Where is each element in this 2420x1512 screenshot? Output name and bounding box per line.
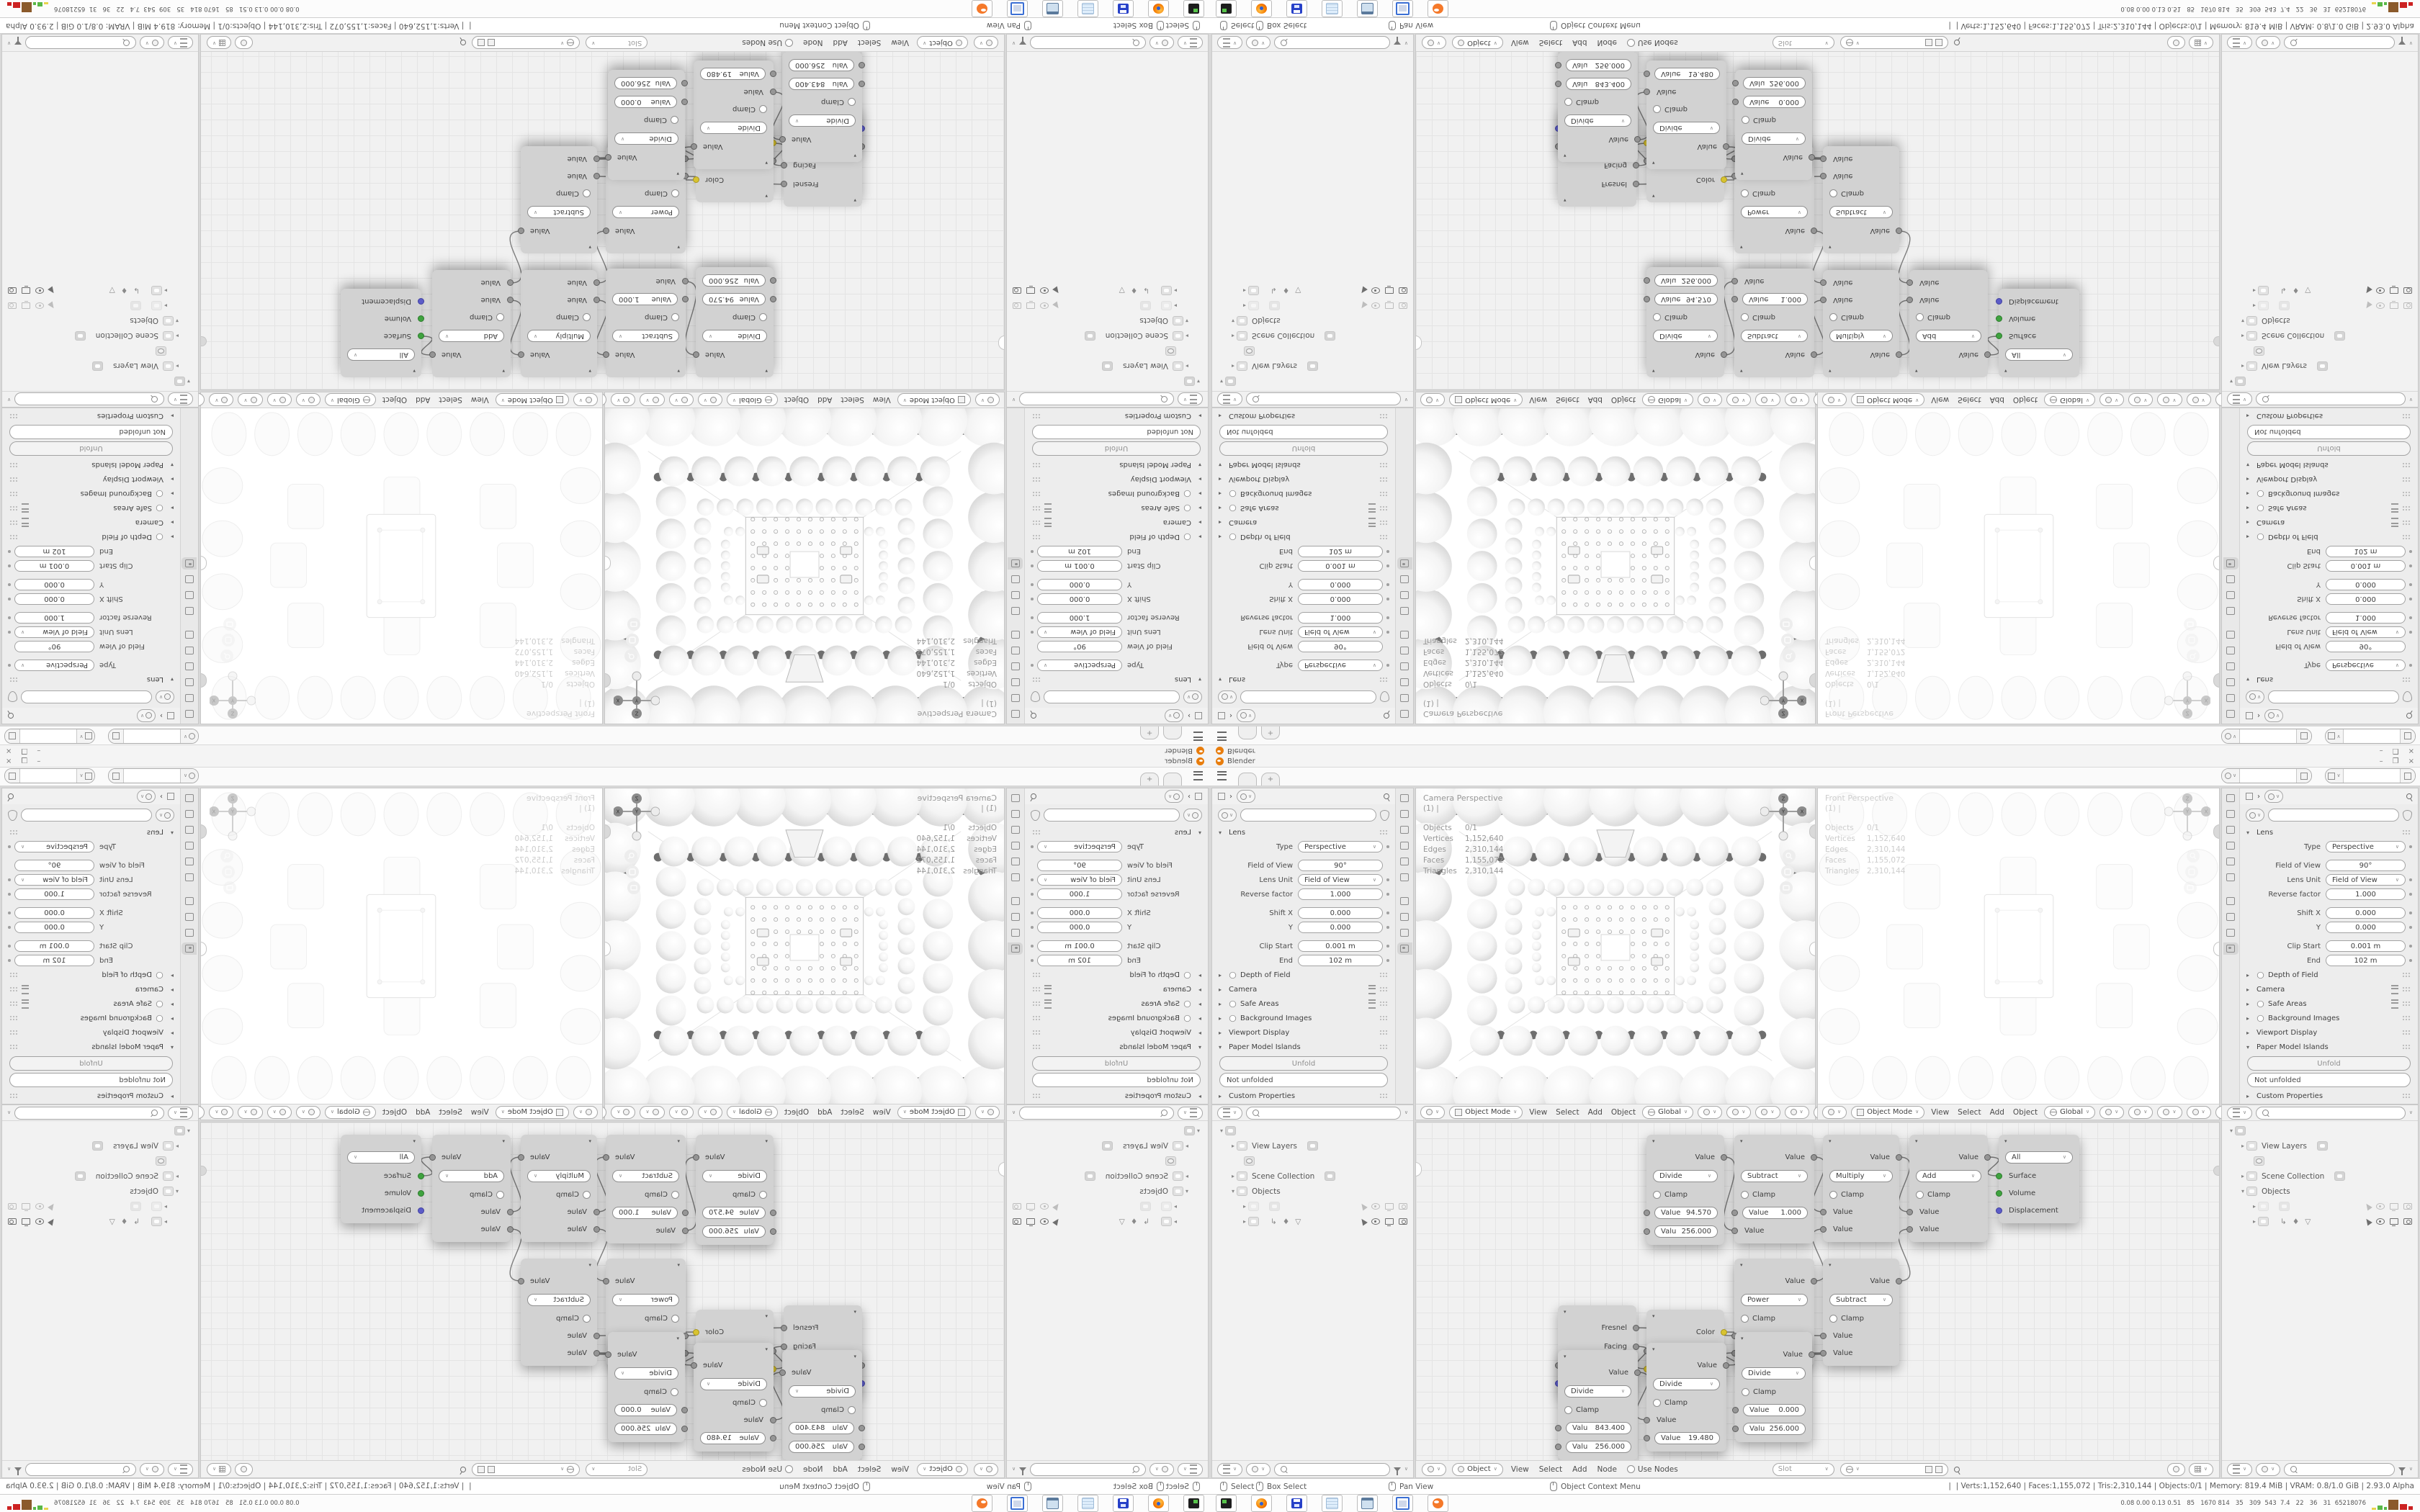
properties-search-input[interactable] <box>1240 809 1376 822</box>
socket-out-fresnel[interactable] <box>781 181 787 188</box>
taskbar-app-system-monitor[interactable] <box>1183 1495 1204 1512</box>
overlays-button[interactable]: ∨ <box>2187 394 2211 407</box>
orientation-selector[interactable]: Global∨ <box>2044 394 2095 407</box>
proportional-editing-button[interactable]: ∨ <box>640 394 664 407</box>
mode-selector[interactable]: Object Mode∨ <box>897 1106 971 1119</box>
restrict-eye-icon[interactable] <box>1040 287 1049 294</box>
value-input[interactable]: Valu843.400 <box>1566 78 1631 91</box>
tab-render[interactable] <box>2223 692 2238 704</box>
outliner-row[interactable] <box>2222 1153 2418 1169</box>
editor-type-button[interactable]: ∨ <box>975 1106 1000 1119</box>
restrict-cursor-icon[interactable] <box>48 1218 56 1226</box>
restrict-eye-icon[interactable] <box>1371 287 1380 294</box>
outliner-row[interactable]: ▸↳♦▽ <box>2222 1214 2418 1229</box>
minimize-button[interactable]: – <box>37 747 40 755</box>
outliner-row[interactable]: ▾ <box>2 1123 198 1138</box>
outliner-row[interactable]: ▸↳♦▽ <box>2222 283 2418 298</box>
object-breadcrumb-icon[interactable] <box>1195 793 1202 800</box>
tab-object[interactable] <box>182 605 197 617</box>
tab-tool[interactable] <box>2223 792 2238 804</box>
restrict-cursor-icon[interactable] <box>2364 1218 2372 1226</box>
node-s1[interactable]: ▾ValueSubtract∨ClampValue1.000Value <box>1734 1135 1814 1243</box>
menu-add[interactable]: Add <box>1988 396 2007 405</box>
id-selector-icon[interactable]: ∨ <box>156 809 174 822</box>
id-selector-icon[interactable]: ∨ <box>1218 809 1237 822</box>
node-outp[interactable]: ▾All∨SurfaceVolumeDisplacement <box>1999 1135 2079 1223</box>
editor-type-button[interactable]: ∨ <box>1420 394 1445 407</box>
snapping-button[interactable]: ∨ <box>207 37 231 50</box>
operation-select[interactable]: Subtract∨ <box>1829 1294 1893 1306</box>
menu-view[interactable]: View <box>1527 396 1549 405</box>
panel-paper-model-islands[interactable]: ▾Paper Model Islands <box>1212 1040 1395 1054</box>
properties-search-input[interactable] <box>21 690 152 703</box>
use-nodes-checkbox[interactable]: Use Nodes <box>740 39 795 48</box>
clamp-checkbox[interactable]: Clamp <box>432 309 511 326</box>
node-s2[interactable]: ▾ValueSubtract∨ClampValueValue <box>521 1259 597 1366</box>
value-input[interactable]: Valu256.000 <box>1654 1225 1718 1238</box>
menu-select[interactable]: Select <box>436 1108 464 1117</box>
add-workspace-button[interactable]: + <box>1140 726 1159 739</box>
panel-background-images[interactable]: ▸Background Images <box>2240 1011 2418 1025</box>
shift-x-input[interactable]: 0.000 <box>14 907 94 919</box>
taskbar-app-floppy-64[interactable] <box>1286 1495 1307 1512</box>
tab-render[interactable] <box>1397 808 1412 820</box>
socket-in[interactable] <box>1555 1444 1561 1450</box>
outliner-row[interactable] <box>1212 343 1413 359</box>
panel-lens[interactable]: ▾Lens <box>2240 825 2418 840</box>
end-input[interactable]: 102 m <box>2326 546 2406 557</box>
restrict-eye-icon[interactable] <box>1371 302 1380 309</box>
socket-in-displacement[interactable] <box>1996 1207 2002 1214</box>
taskbar-app-window-manager[interactable] <box>1357 1495 1378 1512</box>
snapping-button[interactable]: ∨ <box>207 1463 231 1476</box>
operation-select[interactable]: Add∨ <box>1916 330 1981 342</box>
navigation-gizmo[interactable]: ZYX <box>2164 611 2210 719</box>
outliner-row[interactable]: ▸ <box>2 298 198 313</box>
operation-select[interactable]: Divide∨ <box>1564 114 1631 127</box>
menu-select[interactable]: Select <box>1955 1108 1983 1117</box>
viewport-front[interactable]: Front Perspective(1) |Objects0/1Vertices… <box>1817 392 2220 724</box>
reverse-factor-input[interactable]: 1.000 <box>14 888 94 900</box>
editor-type-button[interactable]: ∨ <box>1178 1463 1203 1476</box>
node-canvas[interactable]: ▾ValueDivide∨ClampValue94.570Valu256.000… <box>1416 52 2219 390</box>
restrict-camera-icon[interactable] <box>1013 1203 1021 1210</box>
socket-in-value[interactable] <box>1820 1350 1827 1356</box>
socket-out-value[interactable] <box>603 228 609 235</box>
operation-select[interactable]: Divide∨ <box>1653 330 1718 342</box>
socket-out-value[interactable] <box>1896 1278 1902 1284</box>
outliner-row-view-layers[interactable]: ▸View Layers <box>1212 1138 1413 1153</box>
tab-object-data[interactable] <box>182 557 197 570</box>
value-input[interactable]: Value19.480 <box>1654 68 1720 81</box>
editor-type-button[interactable]: ∨ <box>975 394 1000 407</box>
end-input[interactable]: 102 m <box>14 546 94 557</box>
restrict-monitor-icon[interactable] <box>1385 1218 1394 1225</box>
outliner-row[interactable]: ▾ <box>1212 1123 1413 1138</box>
filter-funnel-icon[interactable] <box>1019 41 1026 45</box>
editor-type-button[interactable]: ∨ <box>168 1463 193 1476</box>
outliner-search-input[interactable] <box>14 1107 164 1120</box>
filter-funnel-icon[interactable] <box>1394 41 1401 45</box>
object-breadcrumb-icon[interactable] <box>1218 793 1225 800</box>
outliner-row[interactable] <box>2 1153 198 1169</box>
shader-id-selector[interactable]: Object∨ <box>1452 37 1503 50</box>
taskbar-app-firefox[interactable] <box>1251 1495 1272 1512</box>
y-input[interactable]: 0.000 <box>14 579 94 590</box>
outliner-row[interactable]: ▸ <box>1007 298 1208 313</box>
restrict-monitor-icon[interactable] <box>22 302 30 309</box>
restrict-cursor-icon[interactable] <box>1359 1218 1368 1226</box>
outliner-row[interactable]: ▾ <box>1212 374 1413 389</box>
snapping-button[interactable]: ∨ <box>2189 37 2213 50</box>
clip-start-input[interactable]: 0.001 m <box>14 940 94 952</box>
proportional-editing-button[interactable]: ∨ <box>2157 394 2182 407</box>
menu-add[interactable]: Add <box>1586 1108 1605 1117</box>
workspace-tab[interactable] <box>1163 726 1182 739</box>
operation-select[interactable]: Divide∨ <box>1653 1170 1718 1182</box>
value-input[interactable]: Valu256.000 <box>1743 1423 1806 1435</box>
editor-type-button[interactable]: ∨ <box>573 1106 598 1119</box>
socket-in-value[interactable] <box>1906 1226 1913 1233</box>
operation-select[interactable]: Divide∨ <box>702 1170 767 1182</box>
restrict-camera-icon[interactable] <box>8 1203 17 1210</box>
panel-safe-areas[interactable]: ▸Safe Areas <box>2240 501 2418 516</box>
operation-select[interactable]: Divide∨ <box>702 330 767 342</box>
panel-viewport-display[interactable]: ▸Viewport Display <box>1025 472 1208 487</box>
clamp-checkbox[interactable]: Clamp <box>1823 1310 1899 1327</box>
menu-select[interactable]: Select <box>856 1465 883 1474</box>
shader-editor[interactable]: ▾ValueDivide∨ClampValue94.570Valu256.000… <box>1415 1122 2220 1478</box>
operation-select[interactable]: All∨ <box>347 1151 415 1164</box>
material-id-field[interactable]: ∨ <box>472 1463 580 1476</box>
object-breadcrumb-icon[interactable] <box>1195 712 1202 719</box>
value-input[interactable]: Valu256.000 <box>789 60 854 72</box>
outliner-row-objects[interactable]: ▾Objects <box>1212 313 1413 328</box>
display-mode-button[interactable]: ∨ <box>1217 393 1242 406</box>
outliner-search-input[interactable] <box>1246 393 1401 406</box>
unfold-status-field[interactable]: Not unfolded <box>1219 1073 1388 1087</box>
camera-data-breadcrumb-icon[interactable]: ∨ <box>1165 790 1183 803</box>
snapping-button[interactable]: ∨ <box>296 1106 321 1119</box>
clamp-checkbox[interactable]: Clamp <box>694 101 774 118</box>
overlays-button[interactable]: ∨ <box>611 394 635 407</box>
clip-start-input[interactable]: 0.001 m <box>1037 560 1122 572</box>
properties-search-input[interactable] <box>1240 690 1376 703</box>
new-scene-button[interactable] <box>2296 729 2311 743</box>
magnet-button[interactable]: ∨ <box>267 394 292 407</box>
node-a[interactable]: ▾ValueAdd∨ClampValueValue <box>432 1135 511 1242</box>
tab-output[interactable] <box>1397 824 1412 836</box>
panel-camera[interactable]: ▸Camera <box>2240 516 2418 530</box>
viewport-front[interactable]: Front Perspective(1) |Objects0/1Vertices… <box>200 392 603 724</box>
lens-unit-input[interactable]: Field of View∨ <box>14 626 94 638</box>
viewport-camera[interactable]: Camera Perspective(1) |Objects0/1Vertice… <box>1415 392 1816 724</box>
clamp-checkbox[interactable]: Clamp <box>696 309 774 326</box>
socket-out-value[interactable] <box>518 1278 524 1284</box>
restrict-camera-icon[interactable] <box>8 287 17 294</box>
taskbar-app-blender[interactable] <box>1428 1495 1448 1512</box>
tab-tool[interactable] <box>1008 792 1023 804</box>
taskbar-app-floppy-64[interactable] <box>1286 0 1307 17</box>
clamp-checkbox[interactable]: Clamp <box>1734 1310 1814 1327</box>
reverse-factor-input[interactable]: 1.000 <box>1298 888 1383 900</box>
material-id-field[interactable]: ∨ <box>1840 1463 1948 1476</box>
outliner-row[interactable]: ▸↳♦▽ <box>2 283 198 298</box>
outliner-search-input[interactable] <box>1030 37 1146 50</box>
taskbar-app-blender[interactable] <box>1428 0 1448 17</box>
taskbar-app-system-monitor[interactable] <box>1216 1495 1237 1512</box>
socket-in-value[interactable] <box>593 1333 600 1339</box>
unfold-status-field[interactable]: Not unfolded <box>1032 425 1201 439</box>
tab-render[interactable] <box>2223 808 2238 820</box>
shift-x-input[interactable]: 0.000 <box>1037 907 1122 919</box>
clamp-checkbox[interactable]: Clamp <box>1823 1186 1899 1203</box>
socket-out-value[interactable] <box>603 352 609 359</box>
clamp-checkbox[interactable]: Clamp <box>606 1310 686 1327</box>
restrict-eye-icon[interactable] <box>2376 287 2385 294</box>
restrict-monitor-icon[interactable] <box>1026 1218 1035 1225</box>
node-d2[interactable]: ▾ValueDivide∨ClampValu843.400Valu256.000 <box>782 1350 862 1460</box>
socket-out-value[interactable] <box>691 1362 697 1369</box>
new-view-layer-button[interactable] <box>2400 769 2415 783</box>
tab-output[interactable] <box>2223 824 2238 836</box>
proportional-editing-button[interactable]: ∨ <box>1755 394 1780 407</box>
properties-search-input[interactable] <box>2268 809 2399 822</box>
display-mode-button[interactable]: ∨ <box>2227 1107 2252 1120</box>
clip-start-input[interactable]: 0.001 m <box>2326 560 2406 572</box>
value-input[interactable]: Value94.570 <box>702 1207 766 1219</box>
value-input[interactable]: Value1.000 <box>612 294 678 306</box>
restrict-eye-icon[interactable] <box>1040 1218 1049 1225</box>
panel-paper-model-islands[interactable]: ▾Paper Model Islands <box>2240 458 2418 472</box>
socket-in[interactable] <box>770 1210 776 1216</box>
editor-type-button[interactable]: ∨ <box>1217 37 1242 50</box>
outliner-row-scene-collection[interactable]: ▸Scene Collection <box>1212 1169 1413 1184</box>
value-input[interactable]: Value94.570 <box>1654 294 1718 306</box>
value-input[interactable]: Value94.570 <box>1654 1207 1718 1219</box>
socket-in[interactable] <box>1731 297 1738 303</box>
socket-in-displacement[interactable] <box>418 1207 424 1214</box>
overlays-button[interactable]: ∨ <box>209 1106 233 1119</box>
panel-camera[interactable]: ▸Camera <box>1212 516 1395 530</box>
clamp-checkbox[interactable]: Clamp <box>1646 1394 1726 1411</box>
value-input[interactable]: Value0.000 <box>1743 1404 1806 1416</box>
id-selector-icon[interactable]: ∨ <box>1183 690 1202 703</box>
tab-scene[interactable] <box>1397 855 1412 868</box>
taskbar-app-blender[interactable] <box>972 0 992 17</box>
operation-select[interactable]: All∨ <box>2005 1151 2073 1164</box>
y-input[interactable]: 0.000 <box>2326 922 2406 933</box>
clamp-checkbox[interactable]: Clamp <box>1909 309 1988 326</box>
node-s1[interactable]: ▾ValueSubtract∨ClampValue1.000Value <box>606 1135 686 1243</box>
lens-unit-input[interactable]: Field of View∨ <box>1037 626 1122 638</box>
restrict-cursor-icon[interactable] <box>48 302 56 310</box>
proportional-editing-button[interactable]: ∨ <box>1755 1106 1780 1119</box>
panel-lens[interactable]: ▾Lens <box>1025 825 1208 840</box>
panel-camera[interactable]: ▸Camera <box>1212 982 1395 996</box>
snapping-button[interactable]: ∨ <box>296 394 321 407</box>
taskbar-app-image-viewer[interactable] <box>1392 0 1413 17</box>
restrict-camera-icon[interactable] <box>1399 302 1407 309</box>
operation-select[interactable]: Divide∨ <box>700 1378 767 1390</box>
new-scene-button[interactable] <box>2296 769 2311 783</box>
menu-select[interactable]: Select <box>436 396 464 405</box>
id-selector-icon[interactable]: ∨ <box>1183 809 1202 822</box>
tab-render[interactable] <box>1008 692 1023 704</box>
operation-select[interactable]: Divide∨ <box>789 114 856 127</box>
clamp-checkbox[interactable]: Clamp <box>1735 1383 1812 1400</box>
restrict-camera-icon[interactable] <box>1013 287 1021 294</box>
clamp-checkbox[interactable]: Clamp <box>782 94 862 111</box>
node-s2[interactable]: ▾ValueSubtract∨ClampValueValue <box>1823 1259 1899 1366</box>
restrict-eye-icon[interactable] <box>1371 1218 1380 1225</box>
snapping-button[interactable]: ∨ <box>1698 394 1722 407</box>
viewport-camera[interactable]: Camera Perspective(1) |Objects0/1Vertice… <box>604 788 1005 1120</box>
clamp-checkbox[interactable]: Clamp <box>696 1186 774 1203</box>
view-layer-name-field[interactable] <box>2344 769 2400 783</box>
socket-in-value[interactable] <box>1906 297 1913 304</box>
outliner-row-scene-collection[interactable]: ▸Scene Collection <box>2222 328 2418 343</box>
tab-view-layer[interactable] <box>1397 840 1412 852</box>
panel-background-images[interactable]: ▸Background Images <box>1025 487 1208 501</box>
taskbar-app-image-viewer[interactable] <box>1392 1495 1413 1512</box>
scene-selector[interactable]: ∨ <box>2221 729 2312 744</box>
menu-object[interactable]: Object <box>380 396 409 405</box>
node-d1[interactable]: ▾ValueDivide∨ClampValue94.570Valu256.000 <box>696 1135 774 1245</box>
restrict-cursor-icon[interactable] <box>1359 1202 1368 1211</box>
tab-world[interactable] <box>182 871 197 883</box>
camera-data-breadcrumb-icon[interactable]: ∨ <box>1237 790 1255 803</box>
y-input[interactable]: 0.000 <box>1037 922 1122 933</box>
socket-out-value[interactable] <box>603 1278 609 1284</box>
tab-constraints[interactable] <box>182 589 197 601</box>
restrict-camera-icon[interactable] <box>2403 302 2412 309</box>
workspace-tab[interactable] <box>1238 773 1257 786</box>
restrict-eye-icon[interactable] <box>35 1203 44 1210</box>
panel-background-images[interactable]: ▸Background Images <box>2240 487 2418 501</box>
object-breadcrumb-icon[interactable] <box>167 712 174 719</box>
socket-in[interactable] <box>1644 278 1650 284</box>
outliner-row-view-layers[interactable]: ▸View Layers <box>2222 359 2418 374</box>
node-d2[interactable]: ▾ValueDivide∨ClampValu843.400Valu256.000 <box>782 52 862 162</box>
end-input[interactable]: 102 m <box>14 955 94 966</box>
editor-type-button[interactable]: ∨ <box>1422 37 1446 50</box>
menu-select[interactable]: Select <box>838 396 866 405</box>
tab-render[interactable] <box>182 808 197 820</box>
reverse-factor-input[interactable]: 1.000 <box>1037 612 1122 624</box>
socket-in[interactable] <box>1555 63 1561 69</box>
outliner-row[interactable] <box>2 343 198 359</box>
menu-select[interactable]: Select <box>1554 396 1581 405</box>
socket-out-color[interactable] <box>1721 1329 1727 1336</box>
menu-node[interactable]: Node <box>1595 1465 1619 1474</box>
panel-camera[interactable]: ▸Camera <box>2 982 180 996</box>
menu-add[interactable]: Add <box>1586 396 1605 405</box>
tab-world[interactable] <box>182 629 197 641</box>
overlays-button[interactable] <box>2167 37 2185 50</box>
outliner-row[interactable] <box>1212 1153 1413 1169</box>
operation-select[interactable]: Subtract∨ <box>527 1294 591 1306</box>
mode-selector[interactable]: Object Mode∨ <box>1851 394 1924 407</box>
tab-constraints[interactable] <box>2223 589 2238 601</box>
orientation-selector[interactable]: Global∨ <box>325 1106 376 1119</box>
tab-world[interactable] <box>1397 871 1412 883</box>
shader-editor[interactable]: ▾ValueDivide∨ClampValue94.570Valu256.000… <box>1415 34 2220 390</box>
outliner-row[interactable]: ▸ <box>1212 298 1413 313</box>
node-a[interactable]: ▾ValueAdd∨ClampValueValue <box>1909 270 1988 377</box>
unfold-button[interactable]: Unfold <box>9 1056 173 1071</box>
outliner-row-objects[interactable]: ▾Objects <box>1007 313 1208 328</box>
scene-name-field[interactable] <box>2240 729 2296 743</box>
socket-in[interactable] <box>1732 99 1739 106</box>
material-id-field[interactable]: ∨ <box>1840 37 1948 50</box>
viewport-canvas-camera[interactable]: Camera Perspective(1) |Objects0/1Vertice… <box>1416 408 1815 724</box>
panel-depth-of-field[interactable]: ▸Depth of Field <box>2240 530 2418 544</box>
tab-world[interactable] <box>1008 871 1023 883</box>
node-a[interactable]: ▾ValueAdd∨ClampValueValue <box>1909 1135 1988 1242</box>
viewport-canvas-camera[interactable]: Camera Perspective(1) |Objects0/1Vertice… <box>1416 788 1815 1104</box>
outliner-row[interactable]: ▾ <box>2222 374 2418 389</box>
socket-in[interactable] <box>1644 1228 1650 1235</box>
overlays-button[interactable] <box>235 37 253 50</box>
taskbar-app-window-manager[interactable] <box>1042 1495 1063 1512</box>
taskbar-app-firefox[interactable] <box>1148 0 1169 17</box>
end-input[interactable]: 102 m <box>1298 546 1383 557</box>
node-m[interactable]: ▾ValueMultiply∨ClampValueValue <box>1823 1135 1899 1242</box>
outliner-row[interactable]: ▸ <box>2222 1199 2418 1214</box>
unfold-status-field[interactable]: Not unfolded <box>9 425 173 439</box>
outliner-row[interactable]: ▸ <box>2222 298 2418 313</box>
value-input[interactable]: Valu256.000 <box>702 275 766 287</box>
outliner-row[interactable]: ▸ <box>2 1199 198 1214</box>
outliner-row[interactable]: ▾ <box>2222 1123 2418 1138</box>
outliner-row-objects[interactable]: ▾Objects <box>1007 1184 1208 1199</box>
node-canvas[interactable]: ▾ValueDivide∨ClampValue94.570Valu256.000… <box>201 52 1004 390</box>
magnet-button[interactable]: ∨ <box>1726 1106 1751 1119</box>
restrict-cursor-icon[interactable] <box>1052 1202 1061 1211</box>
socket-out-value[interactable] <box>1809 1351 1815 1358</box>
tab-constraints[interactable] <box>1008 911 1023 923</box>
socket-out-value[interactable] <box>429 352 436 359</box>
socket-in-value[interactable] <box>1731 1228 1738 1234</box>
node-outp[interactable]: ▾All∨SurfaceVolumeDisplacement <box>1999 289 2079 377</box>
socket-in-surface[interactable] <box>418 1173 424 1179</box>
mode-selector[interactable]: Object Mode∨ <box>1449 1106 1523 1119</box>
lens-unit-input[interactable]: Field of View∨ <box>14 874 94 886</box>
panel-paper-model-islands[interactable]: ▾Paper Model Islands <box>1025 458 1208 472</box>
type-input[interactable]: Perspective∨ <box>1298 660 1383 671</box>
socket-out-value[interactable] <box>1811 1278 1817 1284</box>
panel-paper-model-islands[interactable]: ▾Paper Model Islands <box>2 458 180 472</box>
clamp-checkbox[interactable]: Clamp <box>1646 309 1724 326</box>
menu-icon[interactable] <box>1193 732 1203 741</box>
restrict-camera-icon[interactable] <box>1013 1218 1021 1225</box>
use-nodes-checkbox[interactable]: Use Nodes <box>1625 1465 1680 1474</box>
operation-select[interactable]: Divide∨ <box>1742 132 1806 145</box>
tab-object-data[interactable] <box>1397 942 1412 955</box>
snapping-button[interactable]: ∨ <box>2099 1106 2124 1119</box>
menu-view[interactable]: View <box>469 1108 491 1117</box>
view-layer-name-field[interactable] <box>2344 729 2400 743</box>
menu-object[interactable]: Object <box>782 396 811 405</box>
tab-tool[interactable] <box>182 708 197 720</box>
taskbar-app-notepad[interactable] <box>1322 1495 1343 1512</box>
value-input[interactable]: Valu256.000 <box>1566 1441 1631 1453</box>
end-input[interactable]: 102 m <box>1037 955 1122 966</box>
socket-out-color[interactable] <box>693 177 699 184</box>
filter-mode-button[interactable]: ∨ <box>2256 37 2280 50</box>
clip-start-input[interactable]: 0.001 m <box>1037 940 1122 952</box>
